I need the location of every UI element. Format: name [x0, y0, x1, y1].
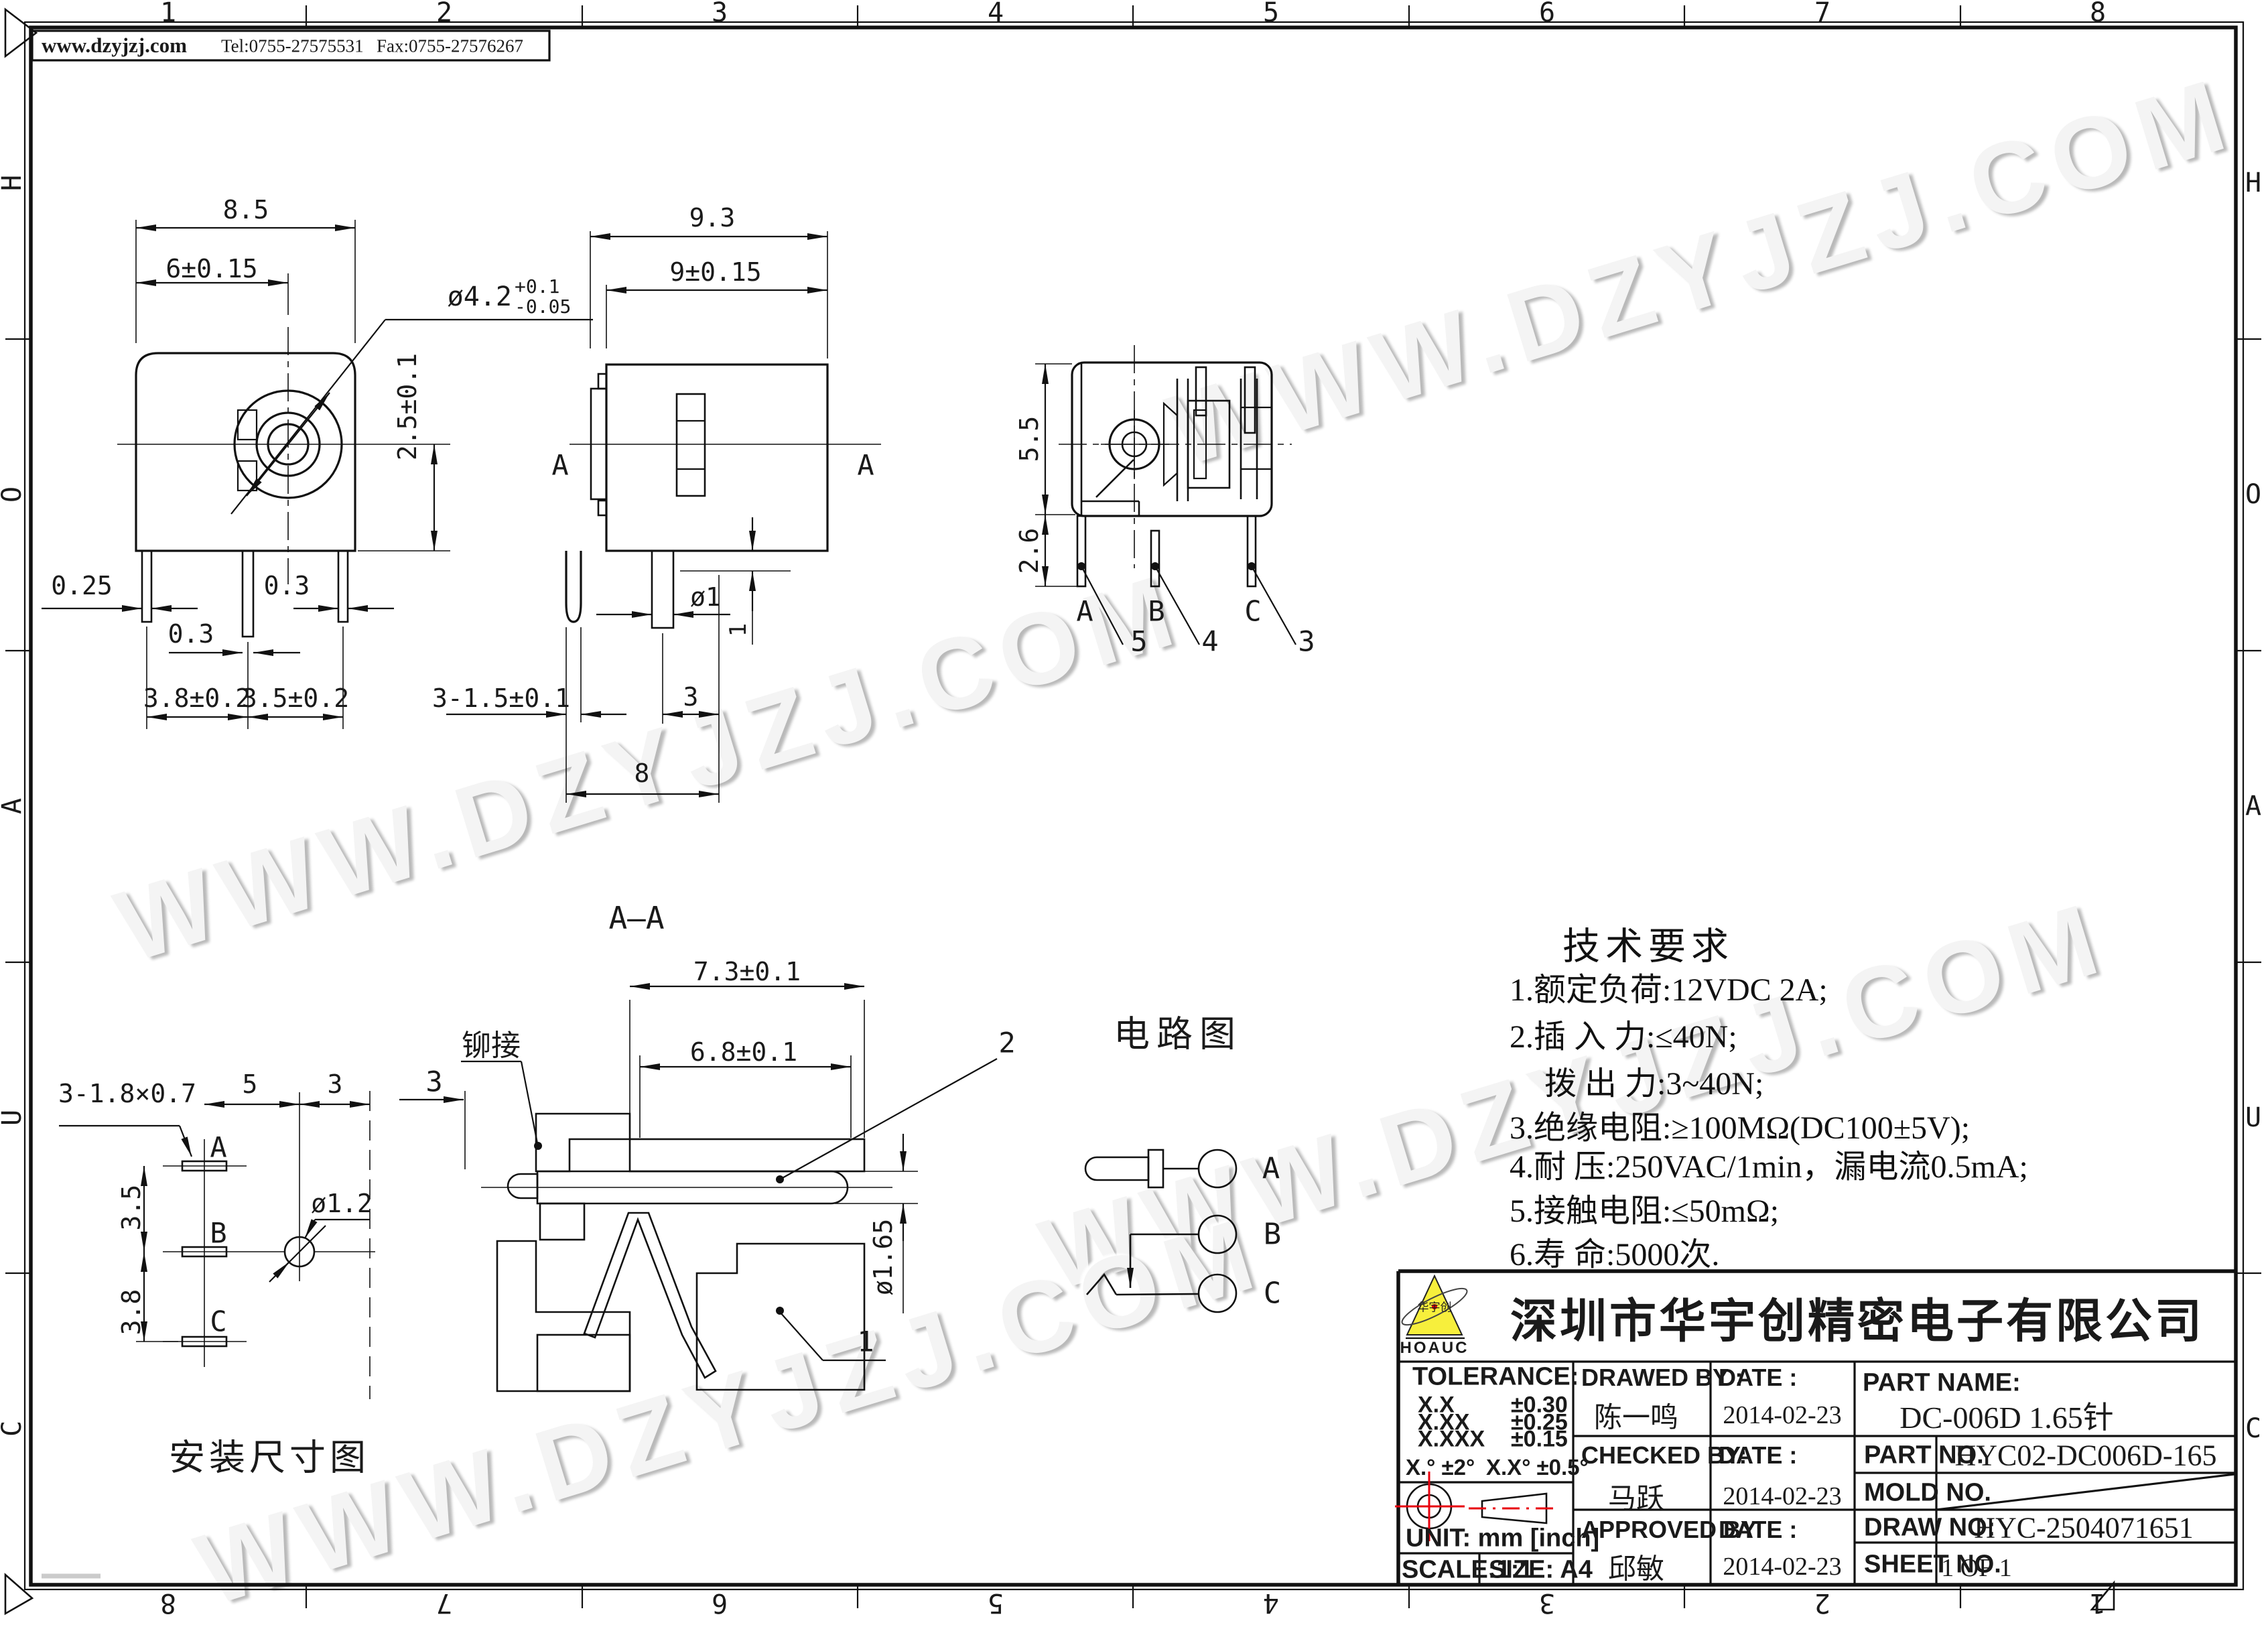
logo-text: 华宇创 [1418, 1298, 1452, 1315]
install-callout: 3-1.8×0.7 [58, 1079, 196, 1108]
zone-col-top-6: 6 [1539, 0, 1555, 28]
tech-line-1: 1.额定负荷:12VDC 2A; [1510, 963, 1828, 1010]
pin-label-b: B [1148, 595, 1164, 628]
section-mark-a-right: A [857, 449, 874, 482]
dim-9-3: 9.3 [689, 203, 736, 233]
zone-col-bottom-8: 1 [2090, 1587, 2106, 1618]
dim-8-side: 8 [635, 759, 650, 788]
zone-col-top-7: 7 [1814, 0, 1830, 28]
checked-by-name: 马跃 [1608, 1476, 1664, 1517]
zone-row-right-3: A [2245, 791, 2261, 822]
zone-row-left-3: A [0, 798, 27, 814]
tech-line-5: 4.耐 压:250VAC/1min，漏电流0.5mA; [1510, 1140, 2028, 1187]
zone-row-right-2: O [2245, 479, 2261, 510]
zone-col-top-8: 8 [2090, 0, 2106, 28]
zone-col-bottom-4: 5 [988, 1587, 1004, 1618]
draw-no-value: HYC-2504071651 [1974, 1511, 2194, 1545]
zone-col-bottom-6: 3 [1539, 1587, 1555, 1618]
install-dim-5: 5 [243, 1069, 258, 1099]
size-label: SIZE: A4 [1489, 1556, 1593, 1585]
dim-3-side: 3 [683, 682, 699, 712]
zone-col-top-4: 4 [988, 0, 1004, 28]
zone-col-bottom-7: 2 [1814, 1587, 1830, 1618]
dim-0-25: 0.25 [51, 571, 113, 600]
circuit-pin-b: B [1264, 1218, 1282, 1252]
install-slot-c: C [210, 1305, 226, 1338]
dim-8-5: 8.5 [223, 195, 269, 224]
pin-number-4: 4 [1201, 625, 1218, 658]
tech-line-2: 2.插 入 力:≤40N; [1510, 1010, 1737, 1057]
zone-row-left-5: C [0, 1421, 27, 1437]
install-dim-3-8: 3.8 [117, 1289, 146, 1335]
dim-6-8: 6.8±0.1 [690, 1037, 797, 1067]
install-dim-3: 3 [328, 1069, 343, 1099]
dim-phi-1-65: ø1.65 [868, 1219, 898, 1295]
dia-minus: -0.05 [515, 297, 571, 317]
circuit-title: 电路图 [1114, 1004, 1242, 1057]
install-caption: 安装尺寸图 [169, 1428, 370, 1481]
zone-col-bottom-3: 6 [712, 1587, 728, 1618]
pin-label-a: A [1076, 595, 1093, 628]
date-label-1: DATE : [1719, 1364, 1797, 1392]
part-no-value: HYC02-DC006D-165 [1954, 1439, 2216, 1473]
date-value-3: 2014-02-23 [1723, 1552, 1841, 1581]
zone-row-left-4: U [0, 1110, 27, 1126]
dim-5-5: 5.5 [1014, 416, 1044, 462]
zone-col-top-3: 3 [712, 0, 728, 28]
tol-row3-val: ±0.15 [1511, 1427, 1568, 1453]
drawing-sheet: { "watermark": "WWW.DZYJZJ.COM", "header… [0, 0, 2268, 1619]
balloon-2: 2 [998, 1027, 1015, 1059]
install-dim-phi-1-2: ø1.2 [311, 1189, 373, 1218]
tech-line-6: 5.接触电阻:≤50mΩ; [1510, 1184, 1779, 1231]
tech-line-3: 拨 出 力:3~40N; [1544, 1057, 1763, 1104]
circuit-pin-c: C [1264, 1277, 1282, 1311]
zone-row-right-5: C [2245, 1413, 2261, 1444]
header-website: www.dzyjzj.com [42, 34, 187, 58]
dim-6-015: 6±0.15 [165, 254, 257, 283]
dim-phi1: ø1 [690, 582, 721, 612]
dim-7-3: 7.3±0.1 [693, 957, 801, 986]
section-title: A—A [608, 900, 664, 936]
dia-main: ø4.2 [448, 281, 512, 312]
pin-number-5: 5 [1130, 625, 1147, 658]
dim-0-3-mid: 0.3 [168, 619, 214, 649]
circuit-pin-a: A [1262, 1152, 1280, 1186]
install-slot-a: A [210, 1131, 226, 1164]
date-value-2: 2014-02-23 [1723, 1482, 1841, 1511]
dim-1-side: 1 [725, 623, 752, 637]
zone-col-top-2: 2 [436, 0, 452, 28]
date-label-3: DATE : [1719, 1516, 1797, 1544]
drawed-by-name: 陈一鸣 [1594, 1395, 1678, 1436]
circuit-diagram-drawing [1085, 1150, 1236, 1312]
unit-label: UNIT: mm [inch] [1406, 1524, 1599, 1553]
dim-0-3-right: 0.3 [264, 571, 310, 600]
dim-9-015: 9±0.15 [669, 257, 761, 287]
part-name-value: DC-006D 1.65针 [1899, 1393, 2113, 1437]
zone-row-right-4: U [2245, 1102, 2261, 1133]
pin-number-3: 3 [1298, 625, 1315, 658]
zone-col-top-5: 5 [1263, 0, 1279, 28]
dia-plus: +0.1 [515, 277, 571, 297]
sheet-no-value: 1 OF 1 [1941, 1553, 2012, 1583]
section-mark-a-left: A [551, 449, 568, 482]
balloon-1: 1 [857, 1325, 874, 1358]
dim-2-5: 2.5±0.1 [393, 353, 422, 460]
rivet-label: 铆接 [462, 1021, 521, 1064]
install-dim-3-5: 3.5 [117, 1185, 146, 1231]
zone-col-bottom-1: 8 [160, 1587, 176, 1618]
zone-row-right-1: H [2245, 168, 2261, 198]
date-value-1: 2014-02-23 [1723, 1400, 1841, 1430]
tol-row3-key: X.XXX [1418, 1427, 1485, 1453]
logo-subtext: HOAUC [1400, 1339, 1469, 1358]
pin-label-c: C [1244, 595, 1261, 628]
tol-angle-1: X.° ±2° [1406, 1455, 1475, 1480]
dim-dia-4-2: ø4.2+0.1-0.05 [448, 277, 572, 317]
header-tel: Tel:0755-27575531 [221, 36, 364, 57]
date-label-2: DATE : [1719, 1441, 1797, 1470]
zone-row-left-2: O [0, 486, 27, 503]
zone-row-left-1: H [0, 175, 27, 191]
header-fax: Fax:0755-27576267 [377, 36, 523, 57]
tech-line-7: 6.寿 命:5000次. [1510, 1228, 1719, 1275]
balloon-3: 3 [425, 1065, 442, 1098]
dim-3-1-5: 3-1.5±0.1 [432, 683, 570, 713]
approved-by-name: 邱敏 [1608, 1547, 1664, 1587]
company-name: 深圳市华宇创精密电子有限公司 [1510, 1284, 2204, 1352]
dim-3-5: 3.5±0.2 [242, 683, 349, 713]
zone-col-bottom-5: 4 [1263, 1587, 1279, 1618]
zone-col-bottom-2: 7 [436, 1587, 452, 1618]
zone-col-top-1: 1 [160, 0, 176, 28]
install-slot-b: B [210, 1217, 226, 1250]
tolerance-label: TOLERANCE: [1412, 1363, 1579, 1392]
tol-angle-2: X.X° ±0.5° [1486, 1455, 1589, 1480]
dim-2-6: 2.6 [1014, 528, 1044, 574]
mold-no-label: MOLD NO. [1864, 1479, 1991, 1508]
dim-3-8: 3.8±0.2 [143, 683, 251, 713]
